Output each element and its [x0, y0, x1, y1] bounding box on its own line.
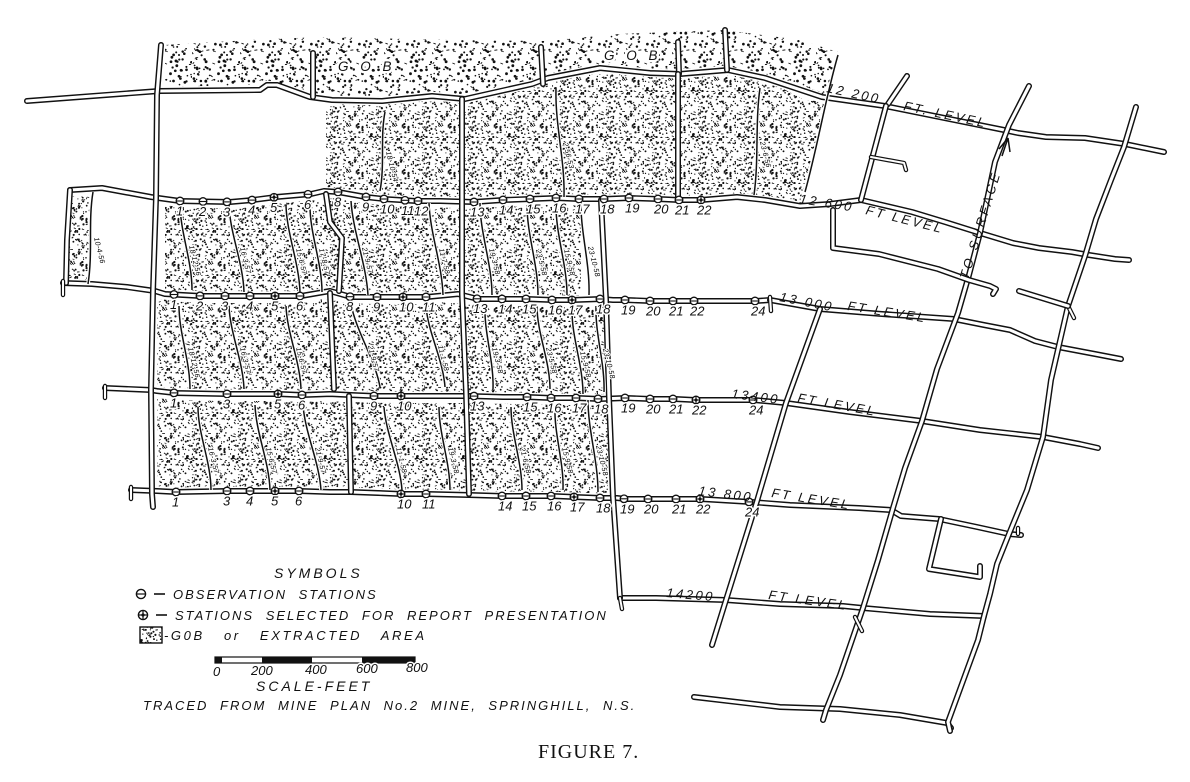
svg-text:4: 4: [246, 299, 253, 314]
svg-text:5: 5: [271, 494, 279, 509]
svg-text:6: 6: [296, 299, 304, 314]
svg-text:5: 5: [274, 397, 282, 412]
svg-text:3: 3: [223, 494, 231, 509]
svg-text:1: 1: [176, 204, 183, 219]
svg-text:2: 2: [195, 298, 204, 313]
svg-text:6: 6: [304, 197, 312, 212]
svg-text:G O B: G O B: [604, 48, 662, 63]
svg-text:4: 4: [248, 203, 255, 218]
svg-text:2: 2: [198, 204, 207, 219]
svg-text:STATIONS SELECTED FOR REPOR: STATIONS SELECTED FOR REPORT PRESENTATIO…: [175, 608, 608, 623]
svg-text:10: 10: [397, 497, 412, 512]
svg-text:13: 13: [470, 399, 485, 414]
svg-text:10: 10: [397, 399, 412, 414]
svg-text:13: 13: [473, 301, 488, 316]
svg-text:-G0B or EXTRACTED AREA: -G0B or EXTRACTED AREA: [164, 628, 427, 643]
svg-text:SCALE-FEET: SCALE-FEET: [256, 678, 372, 694]
svg-text:13: 13: [470, 205, 485, 220]
svg-text:19: 19: [620, 501, 634, 516]
svg-text:19: 19: [621, 401, 635, 416]
svg-text:22: 22: [689, 304, 705, 319]
svg-text:15: 15: [523, 400, 538, 415]
svg-text:8: 8: [346, 299, 354, 314]
svg-text:21: 21: [668, 304, 683, 319]
svg-text:20: 20: [645, 402, 661, 417]
svg-text:200: 200: [250, 663, 273, 678]
svg-text:400: 400: [305, 662, 327, 677]
svg-text:3: 3: [223, 204, 231, 219]
svg-text:20: 20: [653, 202, 669, 217]
svg-text:18: 18: [594, 401, 609, 416]
svg-text:800: 800: [406, 660, 428, 675]
svg-text:17: 17: [572, 401, 587, 416]
svg-text:12: 12: [414, 204, 429, 219]
svg-text:21: 21: [674, 203, 689, 218]
svg-text:1: 1: [170, 297, 177, 312]
svg-text:22: 22: [691, 403, 707, 418]
svg-text:1: 1: [170, 395, 177, 410]
svg-text:14: 14: [498, 499, 512, 514]
svg-text:FIGURE 7.: FIGURE 7.: [538, 741, 639, 763]
svg-text:22: 22: [695, 502, 711, 517]
svg-text:4: 4: [246, 494, 253, 509]
svg-text:SYMBOLS: SYMBOLS: [274, 565, 363, 581]
svg-text:20: 20: [645, 304, 661, 319]
svg-text:600: 600: [356, 661, 378, 676]
svg-text:24: 24: [750, 304, 765, 319]
svg-text:16: 16: [547, 401, 562, 416]
svg-text:19: 19: [625, 201, 639, 216]
svg-text:16: 16: [547, 499, 562, 514]
svg-text:OBSERVATION STATIONS: OBSERVATION STATIONS: [173, 587, 378, 602]
svg-text:14: 14: [498, 302, 512, 317]
svg-text:9: 9: [362, 200, 369, 215]
svg-text:21: 21: [668, 402, 683, 417]
svg-text:15: 15: [522, 499, 537, 514]
svg-text:21: 21: [671, 502, 686, 517]
svg-text:18: 18: [596, 302, 611, 317]
svg-text:6: 6: [295, 494, 303, 509]
svg-text:TRACED FROM MINE PLAN No.2: TRACED FROM MINE PLAN No.2 MINE, SPRINGH…: [143, 698, 636, 713]
svg-text:9: 9: [370, 399, 377, 414]
svg-text:5: 5: [270, 200, 278, 215]
svg-text:G O B: G O B: [338, 59, 396, 74]
svg-text:3: 3: [221, 299, 229, 314]
svg-text:3: 3: [223, 397, 231, 412]
svg-text:20: 20: [643, 502, 659, 517]
svg-text:18: 18: [596, 501, 611, 516]
svg-text:11: 11: [422, 300, 436, 315]
svg-text:14: 14: [499, 203, 513, 218]
svg-text:24: 24: [748, 403, 763, 418]
svg-text:16: 16: [552, 201, 567, 216]
svg-text:5: 5: [271, 299, 279, 314]
svg-text:22: 22: [696, 203, 712, 218]
svg-text:17: 17: [568, 303, 583, 318]
svg-text:9: 9: [373, 300, 380, 315]
svg-text:18: 18: [600, 202, 615, 217]
svg-text:15: 15: [522, 302, 537, 317]
svg-text:17: 17: [570, 500, 585, 515]
svg-text:17: 17: [575, 202, 590, 217]
svg-text:19: 19: [621, 303, 635, 318]
svg-text:10: 10: [399, 300, 414, 315]
svg-text:6: 6: [298, 398, 306, 413]
svg-text:0: 0: [213, 664, 221, 679]
svg-text:1: 1: [172, 495, 179, 510]
svg-text:24: 24: [744, 504, 759, 519]
svg-text:11: 11: [401, 203, 415, 218]
svg-text:15: 15: [526, 202, 541, 217]
svg-text:10: 10: [380, 202, 395, 217]
svg-text:11: 11: [422, 497, 436, 512]
svg-text:16: 16: [548, 303, 563, 318]
svg-text:8: 8: [334, 195, 342, 210]
